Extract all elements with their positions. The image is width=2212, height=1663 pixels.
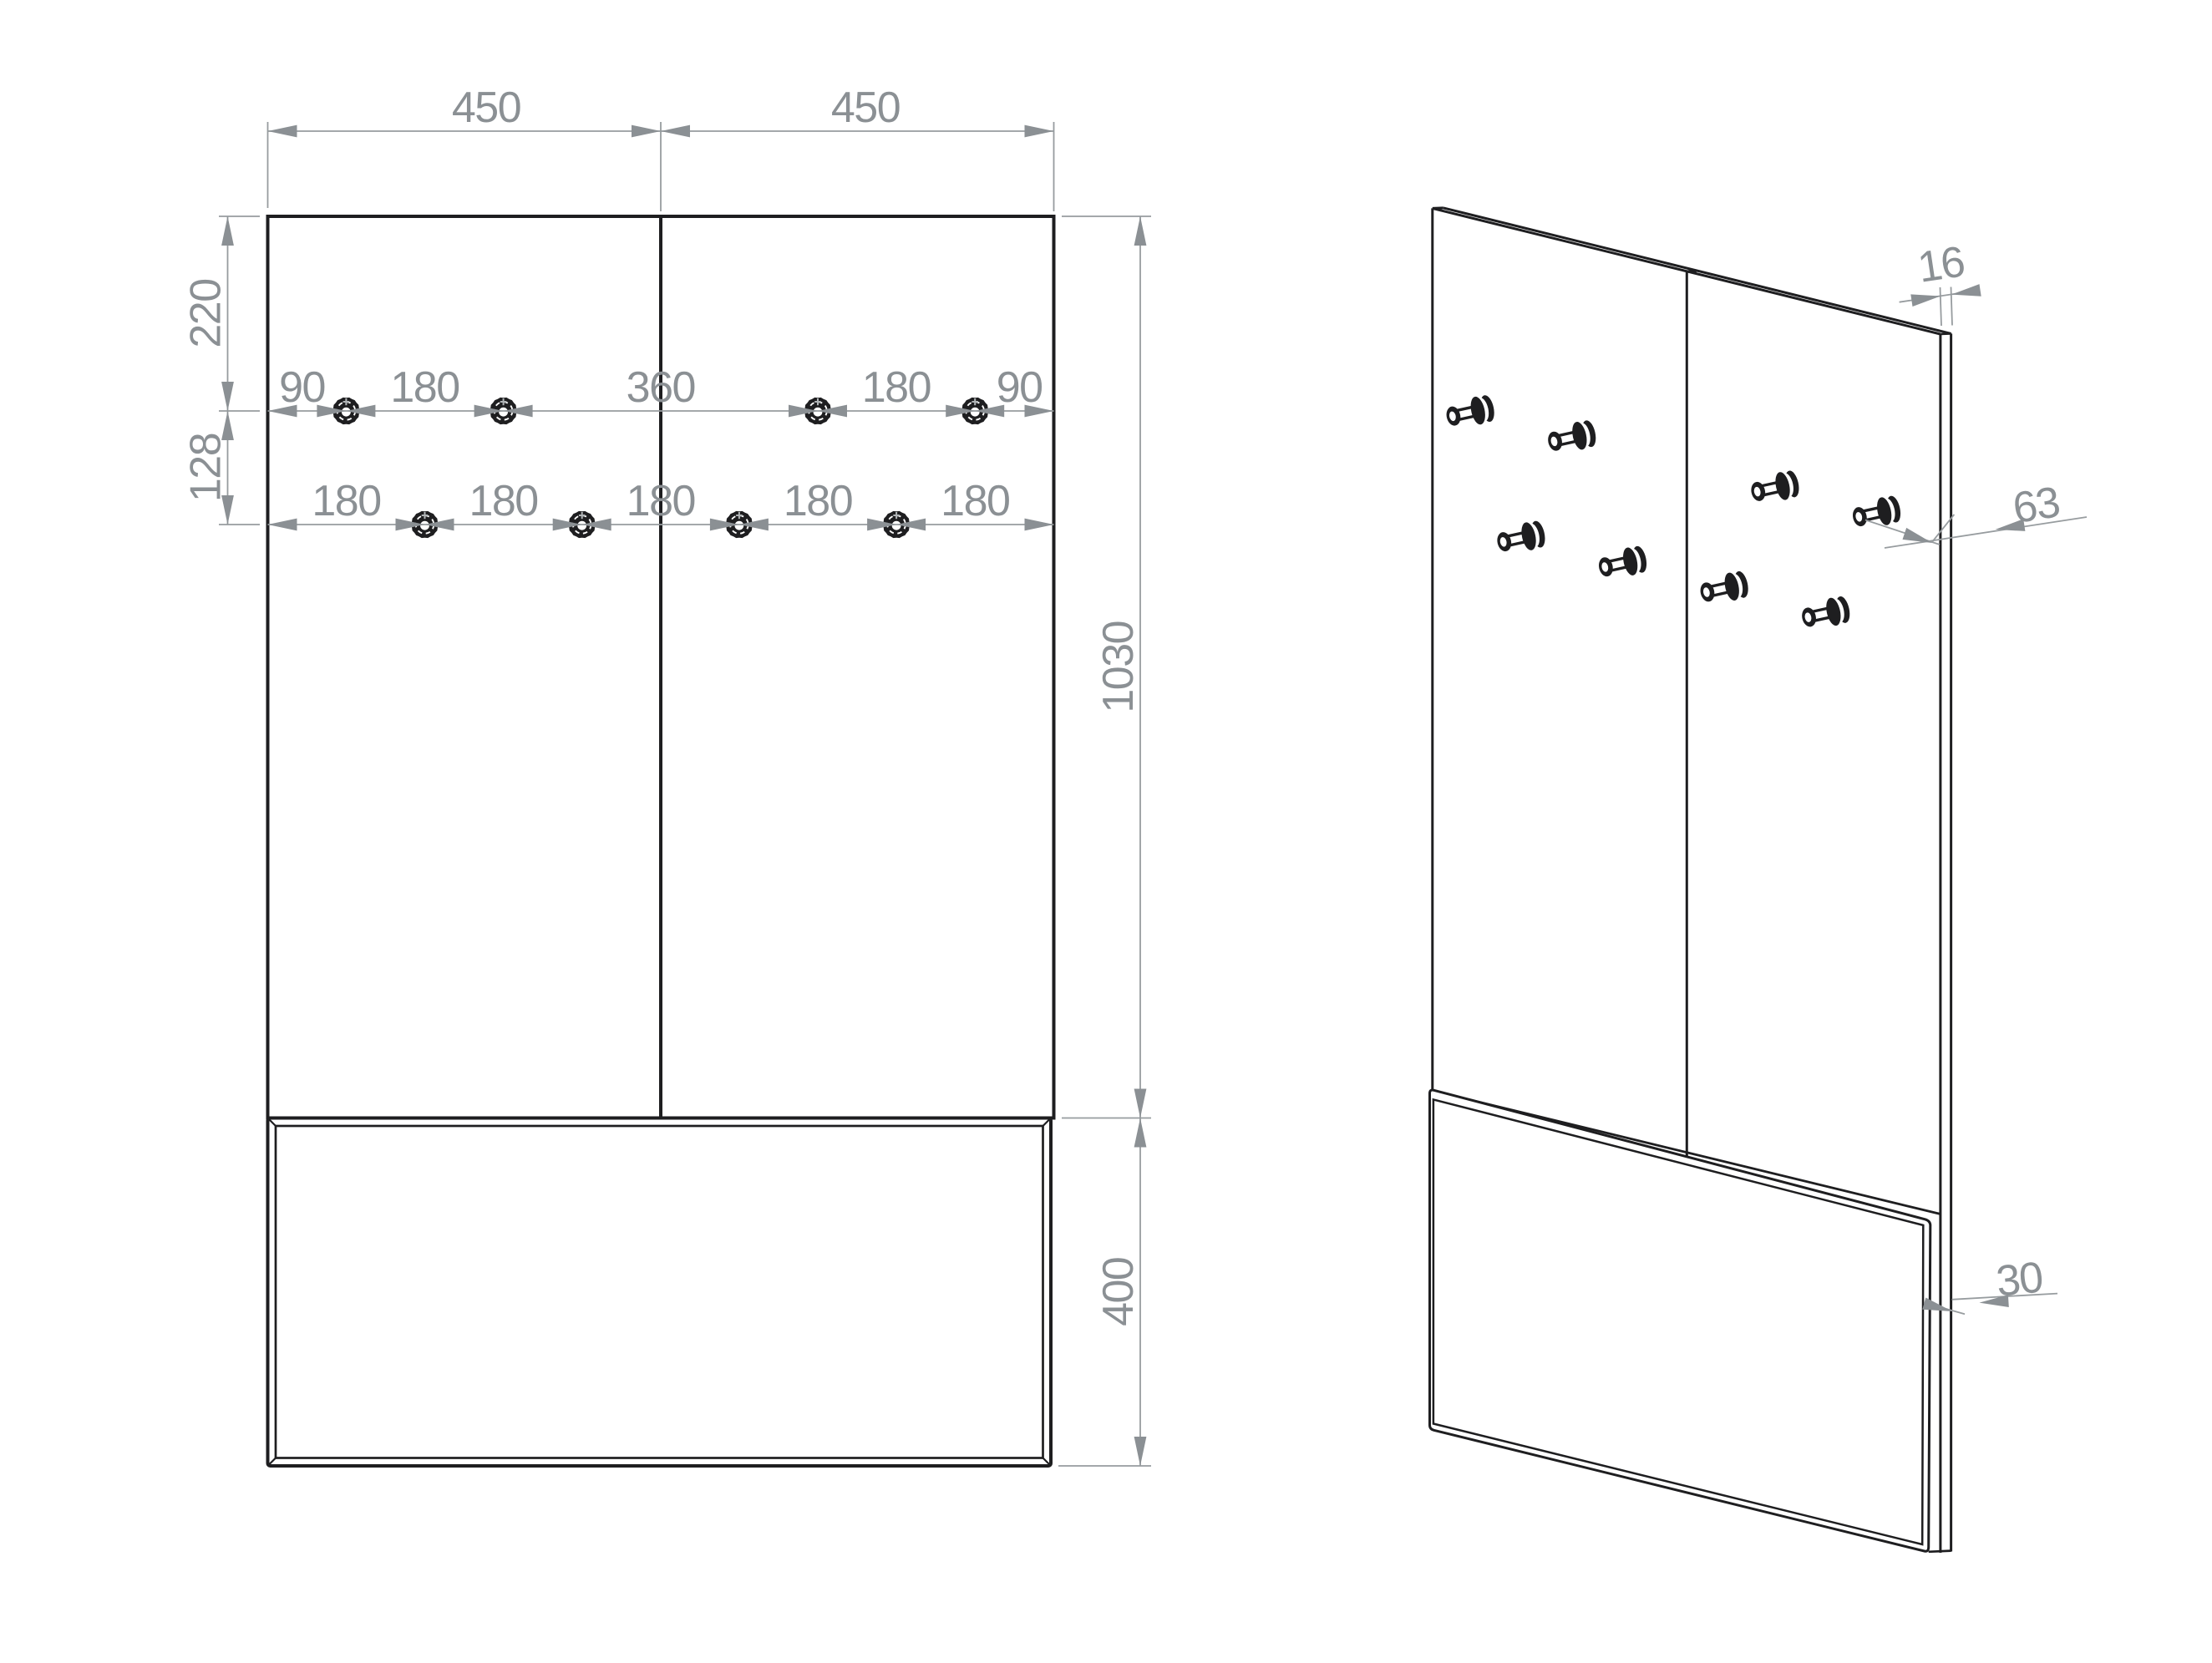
svg-text:180: 180: [941, 477, 1009, 525]
svg-text:90: 90: [279, 363, 325, 412]
svg-text:400: 400: [1094, 1258, 1143, 1326]
svg-text:128: 128: [182, 433, 231, 502]
svg-text:180: 180: [469, 477, 537, 525]
svg-text:450: 450: [831, 84, 900, 132]
svg-text:180: 180: [862, 363, 931, 412]
svg-text:450: 450: [452, 84, 520, 132]
svg-text:63: 63: [2010, 478, 2062, 533]
svg-text:30: 30: [1994, 1253, 2045, 1306]
svg-text:220: 220: [182, 279, 231, 347]
svg-text:180: 180: [627, 477, 695, 525]
svg-text:90: 90: [997, 363, 1043, 412]
svg-text:16: 16: [1915, 237, 1967, 292]
svg-text:360: 360: [627, 363, 695, 412]
svg-text:180: 180: [312, 477, 380, 525]
svg-text:180: 180: [390, 363, 459, 412]
svg-text:180: 180: [784, 477, 852, 525]
svg-text:1030: 1030: [1094, 621, 1143, 713]
